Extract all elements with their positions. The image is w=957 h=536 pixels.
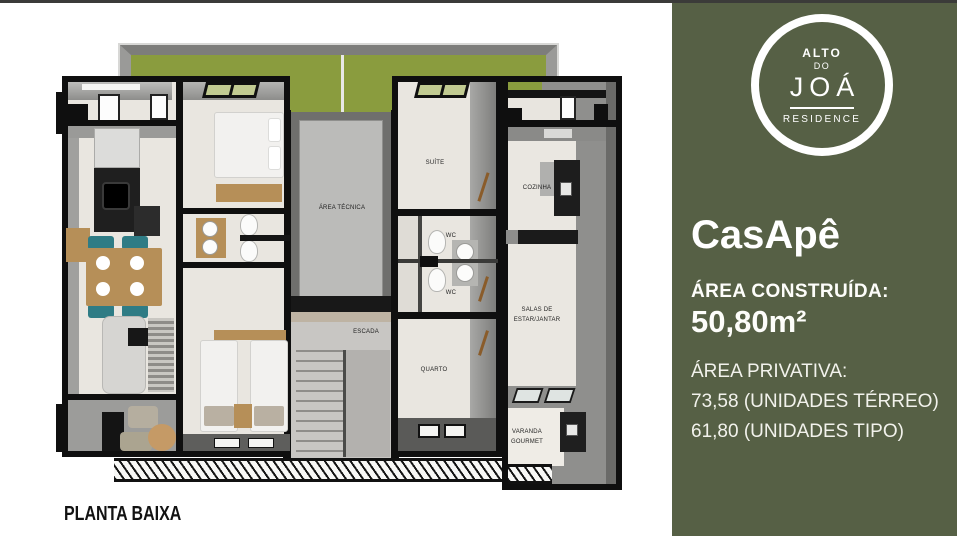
room-label-quarto: QUARTO bbox=[403, 365, 465, 375]
suite-skylight bbox=[414, 82, 470, 98]
twin-blanket bbox=[204, 406, 234, 426]
wc-left-toilet bbox=[240, 214, 258, 236]
room-label-salas-line2: ESTAR/JANTAR bbox=[494, 315, 580, 325]
logo-divider-line bbox=[790, 107, 854, 109]
room-label-salas: SALAS DE ESTAR/JANTAR bbox=[494, 305, 580, 325]
varanda-walkway-hatch bbox=[508, 464, 552, 484]
wc-left-sink bbox=[202, 239, 218, 255]
wc-mid-bottom-wall bbox=[392, 312, 502, 319]
bed-pillow bbox=[268, 146, 281, 170]
wc-mid-sink bbox=[456, 264, 474, 282]
room-label-escada: ESCADA bbox=[336, 327, 396, 337]
left-wall-stub bbox=[56, 92, 64, 134]
entry-door bbox=[98, 94, 120, 122]
rightunit-shelf-band bbox=[508, 90, 606, 98]
right-entry-corner bbox=[594, 104, 608, 120]
cozinha-ceiling-light bbox=[544, 129, 572, 138]
left-wall-stub bbox=[56, 404, 64, 452]
plan-caption: PLANTA BAIXA bbox=[64, 503, 181, 526]
dining-table bbox=[86, 248, 162, 306]
room-label-cozinha: COZINHA bbox=[505, 183, 569, 193]
room-label-varanda: VARANDA GOURMET bbox=[492, 427, 562, 447]
twin-mat bbox=[248, 438, 274, 448]
logo-text-residence: RESIDENCE bbox=[783, 114, 861, 125]
top-border-line bbox=[0, 0, 957, 3]
private-area-terreo: 73,58 (UNIDADES TÉRREO) bbox=[691, 391, 939, 413]
core-landing-strip bbox=[288, 312, 392, 322]
twin-blanket bbox=[254, 406, 284, 426]
plate bbox=[130, 282, 144, 296]
entry-light-streak bbox=[82, 84, 140, 90]
room-label-varanda-line1: VARANDA bbox=[492, 427, 562, 437]
wc-left-divider bbox=[240, 235, 290, 241]
room-label-salas-line1: SALAS DE bbox=[494, 305, 580, 315]
private-area-label: ÁREA PRIVATIVA: bbox=[691, 361, 847, 383]
suite-bottom-wall bbox=[392, 209, 502, 216]
twin-nightstand bbox=[234, 404, 252, 428]
bedroom1-skylight bbox=[202, 82, 260, 98]
oven-tower bbox=[134, 206, 160, 236]
cooktop bbox=[102, 182, 130, 210]
logo-text-do: DO bbox=[814, 61, 831, 71]
logo-text-alto: ALTO bbox=[802, 46, 842, 60]
core-dark-band bbox=[290, 296, 392, 312]
living-rug bbox=[148, 318, 174, 392]
right-entry-door bbox=[560, 96, 576, 120]
logo: ALTO DO JOÁ RESIDENCE bbox=[751, 14, 893, 156]
right-entry-bottom-wall bbox=[502, 120, 622, 127]
wc-left-toilet bbox=[240, 240, 258, 262]
built-area-label: ÁREA CONSTRUÍDA: bbox=[691, 281, 889, 303]
right-entry-corner bbox=[508, 108, 522, 120]
room-label-suite: SUÍTE bbox=[405, 158, 465, 168]
stairs-upper-flight bbox=[346, 350, 390, 457]
lawn-divider bbox=[341, 55, 344, 115]
quarto-mat bbox=[444, 424, 466, 438]
kitchen-upper-cabinets bbox=[94, 128, 140, 168]
glass-pane bbox=[544, 388, 576, 403]
wc-mid-divider-wall bbox=[420, 256, 438, 267]
entry-door-2 bbox=[150, 94, 168, 120]
twin-headboard bbox=[214, 330, 286, 340]
glass-doors bbox=[509, 386, 581, 406]
wc-left-sink bbox=[202, 221, 218, 237]
room-label-wc-1: WC bbox=[431, 231, 471, 241]
twin-mat bbox=[214, 438, 240, 448]
wc-corridor bbox=[398, 216, 418, 312]
bedroom1-bottom-wall bbox=[183, 208, 290, 214]
plate bbox=[96, 256, 110, 270]
built-area-value: 50,80m² bbox=[691, 304, 806, 340]
private-area-tipo: 61,80 (UNIDADES TIPO) bbox=[691, 421, 904, 443]
patio-round-table bbox=[148, 424, 176, 451]
wc-mid-divider bbox=[398, 259, 498, 263]
cozinha-counter-end bbox=[506, 230, 518, 244]
stairs-steps bbox=[296, 350, 343, 457]
glass-pane bbox=[512, 388, 544, 403]
bed-pillow bbox=[268, 118, 281, 142]
page: ÁREA TÉCNICA ESCADA SUÍTE WC WC QUARTO C… bbox=[0, 0, 957, 536]
walkway-hatch bbox=[114, 458, 504, 482]
rightunit-wall-face bbox=[606, 82, 616, 484]
bed-bench bbox=[216, 184, 282, 202]
info-panel: ALTO DO JOÁ RESIDENCE CasApê ÁREA CONSTR… bbox=[672, 0, 957, 536]
project-title: CasApê bbox=[691, 213, 840, 258]
room-label-varanda-line2: GOURMET bbox=[492, 437, 562, 447]
plate bbox=[96, 282, 110, 296]
grill-door bbox=[566, 424, 578, 436]
room-label-area-tecnica: ÁREA TÉCNICA bbox=[296, 203, 388, 213]
left-wall-face bbox=[68, 138, 79, 394]
wc-left-bottom-wall bbox=[183, 262, 290, 268]
quarto-mat bbox=[418, 424, 440, 438]
plate bbox=[130, 256, 144, 270]
logo-text-joa: JOÁ bbox=[784, 72, 861, 103]
room-label-wc-2: WC bbox=[431, 288, 471, 298]
patio-chair bbox=[128, 406, 158, 428]
